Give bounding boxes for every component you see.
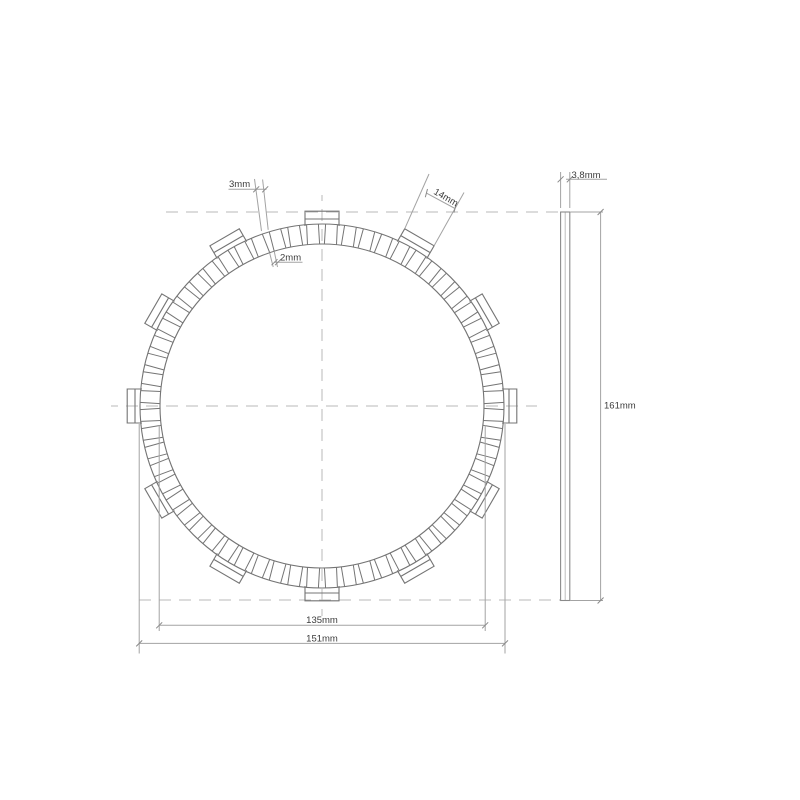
svg-text:135mm: 135mm <box>306 615 338 626</box>
svg-text:3,8mm: 3,8mm <box>572 170 601 181</box>
svg-text:14mm: 14mm <box>432 187 460 210</box>
svg-text:161mm: 161mm <box>604 401 636 412</box>
svg-text:2mm: 2mm <box>280 252 301 263</box>
svg-text:151mm: 151mm <box>306 634 338 645</box>
svg-text:3mm: 3mm <box>229 179 250 190</box>
